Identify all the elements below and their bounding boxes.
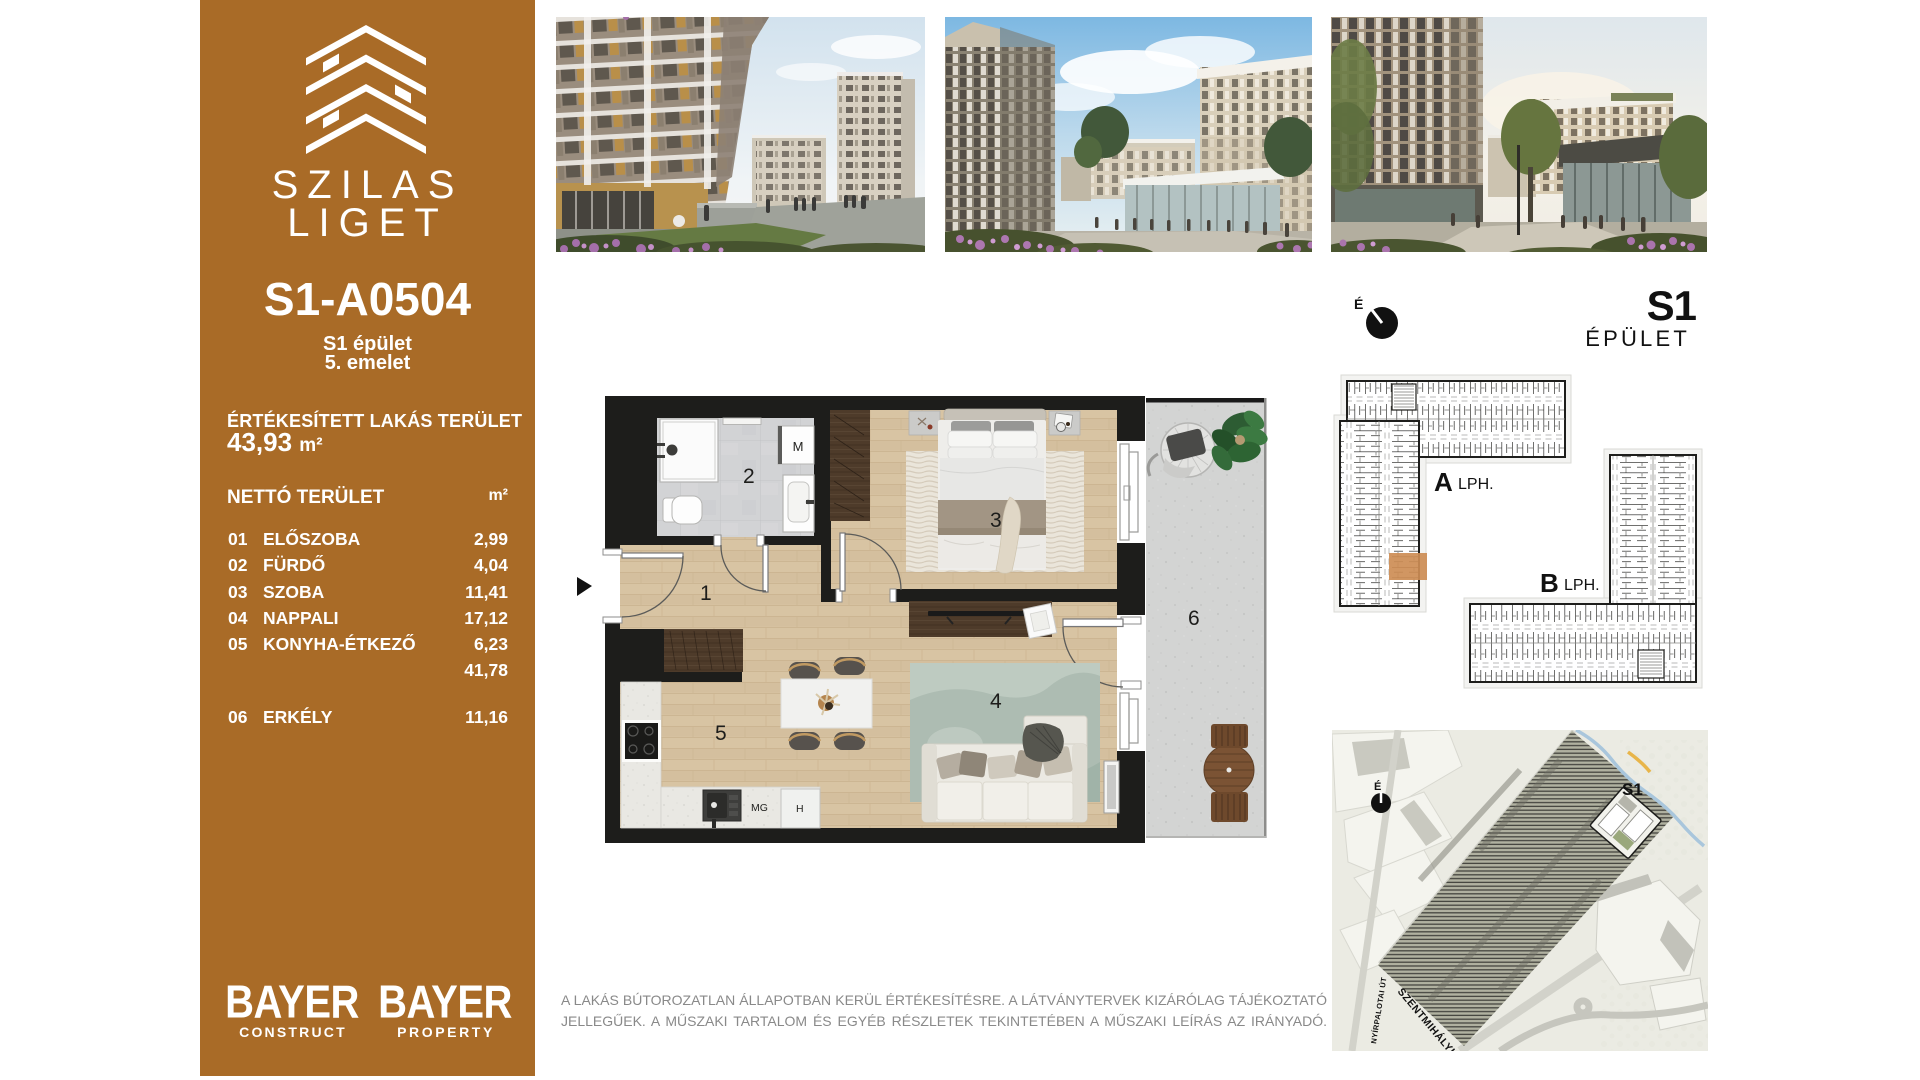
svg-text:S1: S1 [1647, 282, 1697, 329]
svg-text:5: 5 [715, 722, 727, 745]
svg-text:B: B [1540, 568, 1559, 598]
svg-text:2: 2 [743, 465, 755, 488]
svg-text:H: H [796, 803, 804, 815]
svg-text:É: É [1354, 296, 1363, 312]
svg-text:MG: MG [751, 802, 768, 814]
svg-text:1: 1 [700, 582, 712, 605]
svg-text:É: É [1374, 780, 1381, 793]
svg-text:ÉPÜLET: ÉPÜLET [1585, 326, 1690, 351]
svg-text:M: M [793, 439, 804, 454]
svg-text:4: 4 [990, 690, 1002, 713]
svg-text:S1: S1 [1622, 780, 1643, 799]
svg-text:3: 3 [990, 509, 1002, 532]
svg-text:6: 6 [1188, 607, 1200, 630]
svg-text:LPH.: LPH. [1458, 476, 1494, 493]
svg-text:LPH.: LPH. [1564, 577, 1600, 594]
svg-text:A: A [1434, 467, 1453, 497]
